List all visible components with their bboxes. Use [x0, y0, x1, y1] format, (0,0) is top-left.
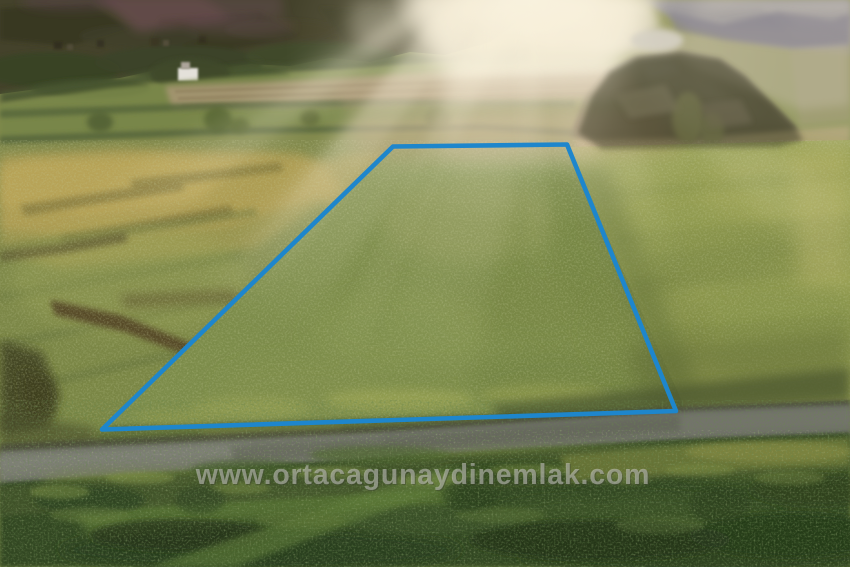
- svg-text:www.ortacagunaydinemlak.com: www.ortacagunaydinemlak.com: [195, 459, 651, 491]
